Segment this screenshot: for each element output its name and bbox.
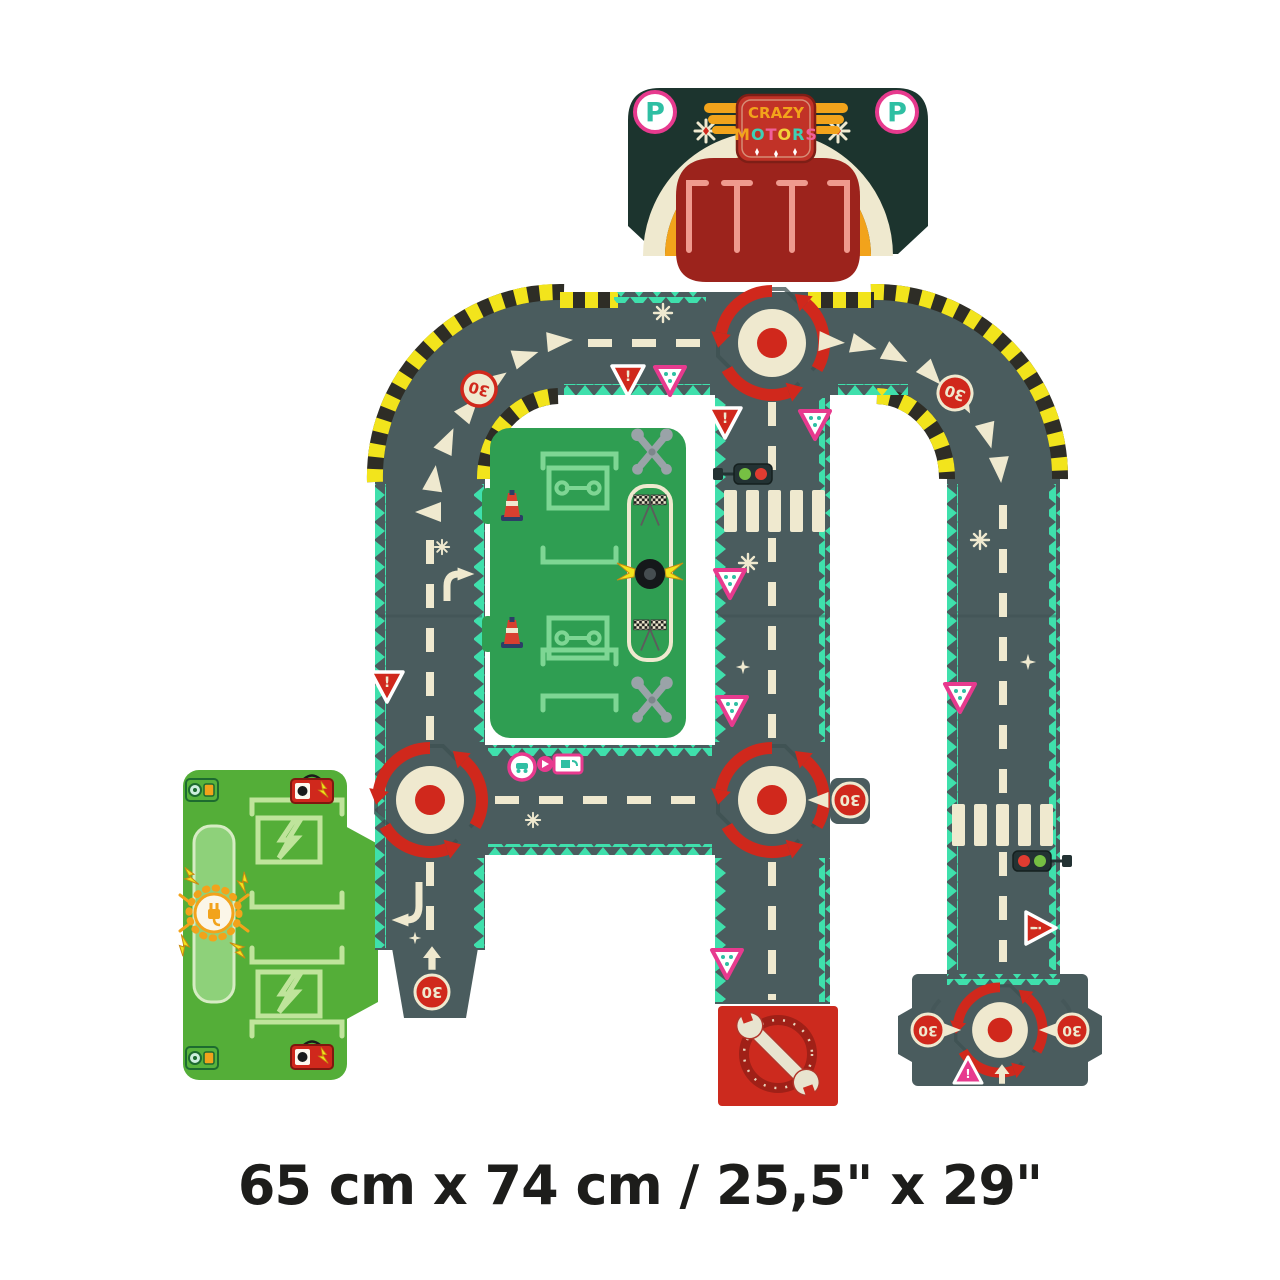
- svg-text:P: P: [887, 98, 907, 129]
- play-mat-illustration: 30 30 30 30 30 30 ! !: [0, 0, 1280, 1280]
- battery-icon: [291, 776, 333, 804]
- traffic-light-icon: [1013, 851, 1072, 871]
- pump-machine-icon: [186, 779, 218, 801]
- parking-lot-surface: [676, 158, 860, 282]
- svg-text:30: 30: [840, 791, 861, 809]
- parking-icon: P: [877, 92, 917, 132]
- svg-text:30: 30: [422, 983, 443, 1001]
- svg-text:!: !: [625, 369, 631, 385]
- svg-text:!: !: [1029, 925, 1045, 931]
- logo-crazy-text: CRAZY: [748, 104, 805, 122]
- pump-machine-icon: [186, 1047, 218, 1069]
- product-image: 30 30 30 30 30 30 ! !: [0, 0, 1280, 1280]
- svg-text:30: 30: [1062, 1022, 1082, 1038]
- garage-piece: [482, 426, 686, 738]
- charging-station-piece: [174, 770, 378, 1080]
- road-network: 30 30 30 30 30 30 ! !: [369, 288, 1102, 1095]
- fuel-station-sign: [554, 755, 582, 773]
- parking-icon: P: [635, 92, 675, 132]
- speed-limit-sign: 30: [415, 975, 449, 1009]
- wrench-piece: [718, 998, 838, 1111]
- battery-icon: [291, 1042, 333, 1070]
- direction-sign: [537, 756, 553, 772]
- car-wash-sign: [509, 754, 535, 780]
- svg-text:P: P: [645, 98, 665, 129]
- parking-lot-piece: P P CRAZY MOTORS: [628, 88, 928, 282]
- speed-limit-sign: 30: [912, 1014, 944, 1046]
- svg-text:!: !: [722, 411, 728, 427]
- svg-text:!: !: [384, 675, 390, 691]
- speed-limit-sign: 30: [833, 783, 867, 817]
- svg-text:30: 30: [918, 1022, 938, 1038]
- speed-limit-sign: 30: [1056, 1014, 1088, 1046]
- logo-motors-text: MOTORS: [734, 125, 818, 144]
- dimensions-label: 65 cm x 74 cm / 25,5" x 29": [0, 1154, 1280, 1217]
- svg-text:!: !: [965, 1067, 970, 1081]
